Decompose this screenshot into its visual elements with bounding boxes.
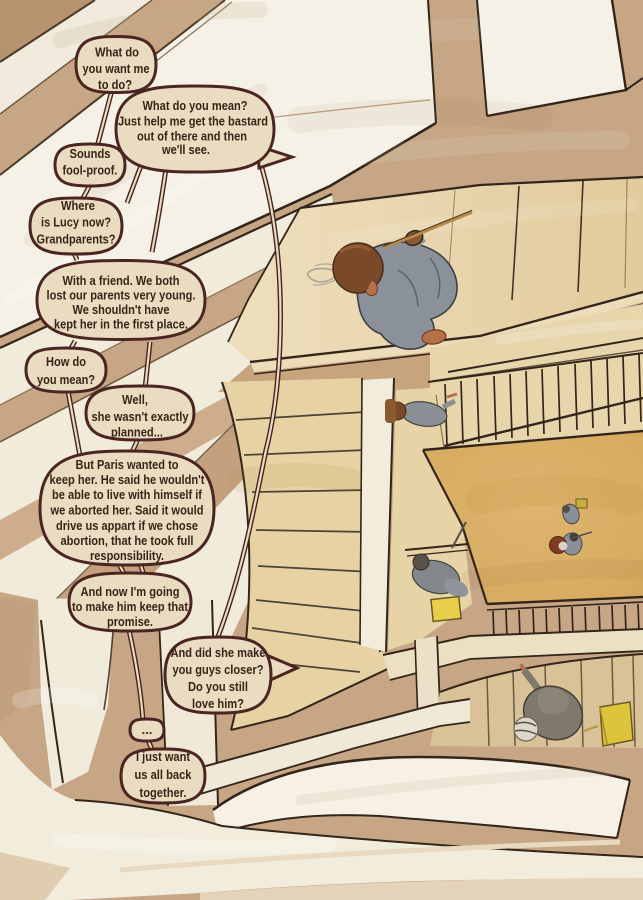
svg-text:promise.: promise. (107, 614, 153, 629)
svg-text:together.: together. (140, 785, 187, 800)
svg-text:Well,: Well, (122, 392, 148, 407)
svg-text:us all back: us all back (135, 767, 193, 782)
svg-text:she wasn't exactly: she wasn't exactly (92, 409, 190, 424)
svg-text:be able to live with himself i: be able to live with himself if (52, 487, 203, 502)
svg-text:we'll see.: we'll see. (161, 142, 210, 157)
svg-text:And now I'm going: And now I'm going (81, 584, 180, 599)
svg-text:you guys closer?: you guys closer? (173, 662, 264, 677)
svg-text:we aborted her. Said it would: we aborted her. Said it would (50, 503, 204, 518)
svg-text:What do you mean?: What do you mean? (143, 98, 248, 113)
svg-text:How do: How do (46, 354, 86, 369)
svg-text:planned...: planned... (111, 425, 163, 440)
svg-text:Just help me get the bastard: Just help me get the bastard (118, 114, 268, 129)
svg-text:keep her. He said he wouldn't: keep her. He said he wouldn't (50, 472, 206, 487)
svg-text:With a friend. We both: With a friend. We both (63, 273, 180, 288)
svg-text:kept her in the first place.: kept her in the first place. (54, 317, 188, 332)
svg-text:What do: What do (95, 45, 139, 60)
svg-text:...: ... (142, 722, 153, 737)
svg-text:you mean?: you mean? (37, 372, 95, 387)
svg-text:Sounds: Sounds (70, 146, 111, 161)
svg-text:you want me: you want me (83, 61, 150, 76)
svg-text:responsibility.: responsibility. (90, 548, 164, 563)
svg-text:Grandparents?: Grandparents? (37, 232, 116, 247)
svg-text:And did she make: And did she make (171, 645, 266, 660)
svg-text:drive us appart if we chose: drive us appart if we chose (56, 518, 198, 533)
svg-text:fool-proof.: fool-proof. (63, 163, 118, 178)
svg-text:is Lucy now?: is Lucy now? (41, 215, 111, 230)
svg-text:We shouldn't have: We shouldn't have (73, 302, 170, 317)
svg-text:lost our parents very young.: lost our parents very young. (47, 288, 196, 303)
svg-text:Where: Where (61, 198, 95, 213)
svg-text:to make him keep that: to make him keep that (72, 599, 189, 614)
svg-text:But Paris wanted to: But Paris wanted to (76, 457, 179, 472)
svg-text:to do?: to do? (98, 77, 132, 92)
svg-text:abortion, that he took full: abortion, that he took full (61, 533, 194, 548)
svg-text:love him?: love him? (192, 696, 244, 711)
svg-text:Do you still: Do you still (188, 679, 248, 694)
svg-text:I just want: I just want (136, 749, 191, 764)
